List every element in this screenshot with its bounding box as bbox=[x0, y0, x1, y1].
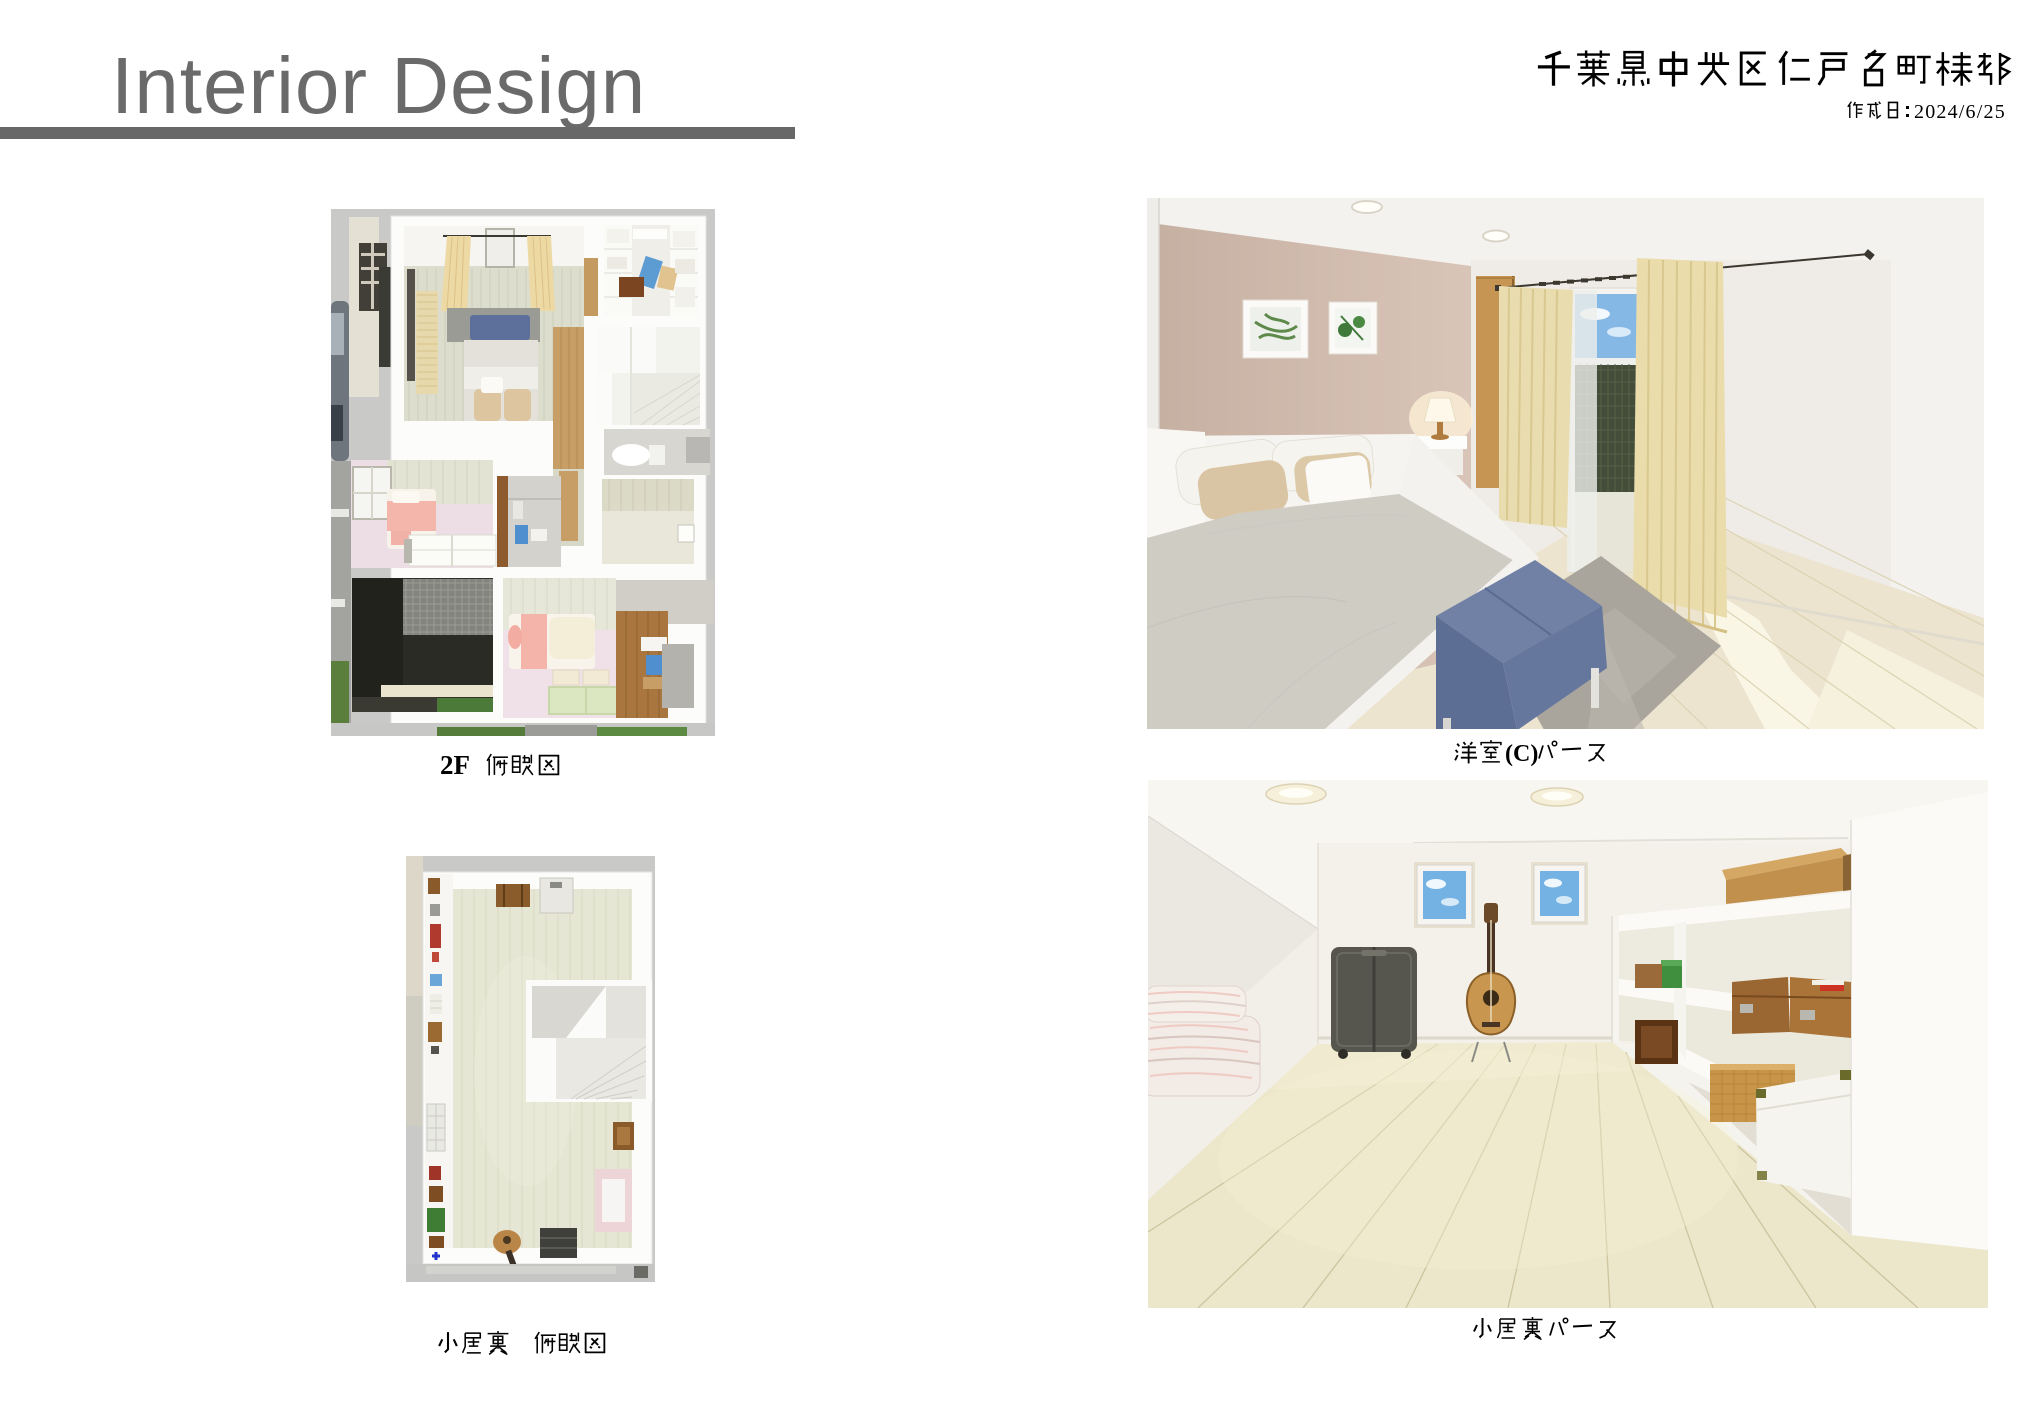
svg-text:2F: 2F bbox=[440, 750, 470, 780]
svg-text:(C): (C) bbox=[1505, 741, 1538, 767]
svg-text:2024/6/25: 2024/6/25 bbox=[1914, 101, 2006, 123]
